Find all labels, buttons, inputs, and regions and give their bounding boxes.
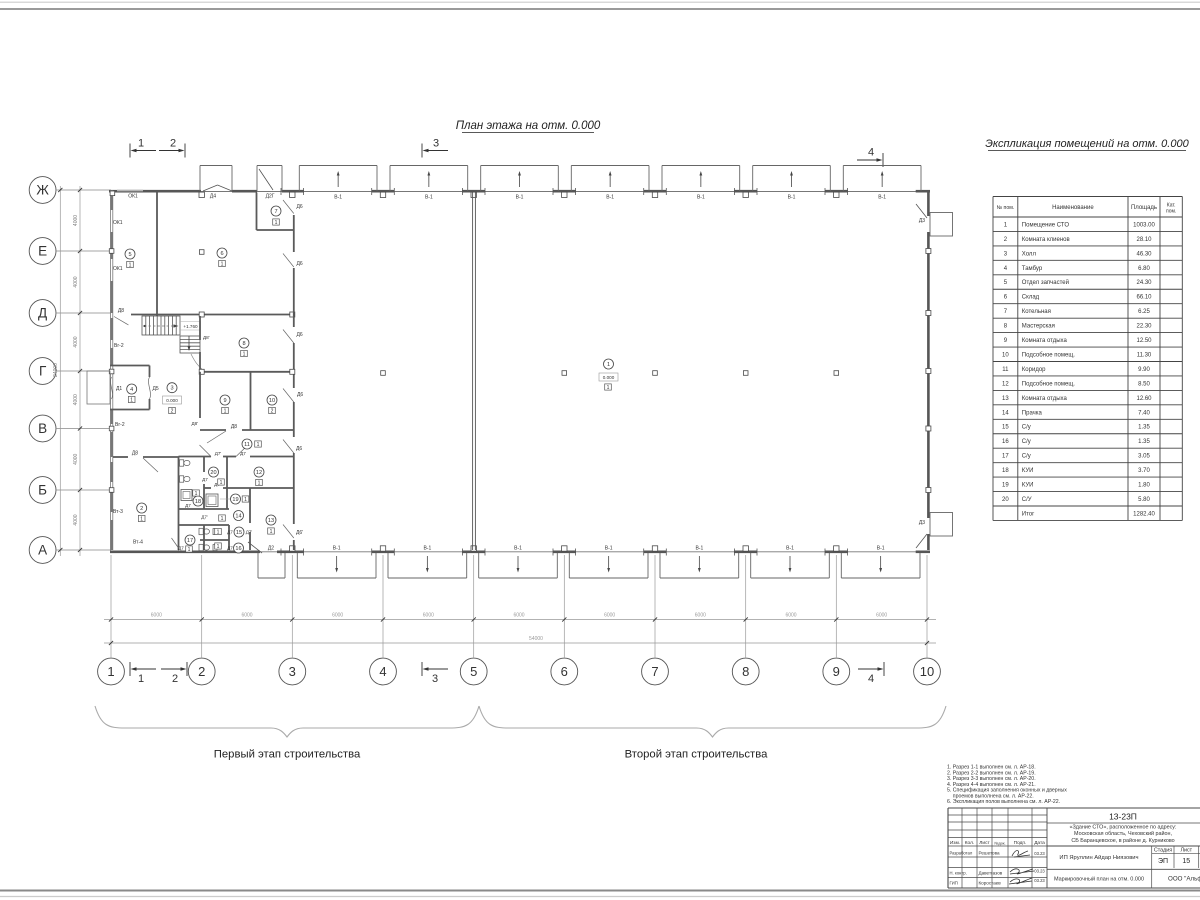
svg-text:4000: 4000 — [73, 453, 79, 464]
svg-text:4000: 4000 — [73, 394, 79, 405]
svg-text:Вт-4: Вт-4 — [133, 540, 143, 546]
svg-text:3: 3 — [289, 664, 296, 679]
svg-text:6000: 6000 — [423, 613, 434, 619]
svg-text:Вт-3: Вт-3 — [113, 509, 123, 515]
svg-text:Д7: Д7 — [202, 477, 208, 482]
svg-text:Д6: Д6 — [297, 204, 303, 210]
svg-text:20: 20 — [1002, 497, 1009, 503]
svg-text:В-1: В-1 — [786, 545, 794, 551]
svg-text:46.30: 46.30 — [1136, 251, 1152, 257]
svg-text:8: 8 — [742, 664, 749, 679]
svg-text:Тамбур: Тамбур — [1022, 266, 1043, 272]
svg-text:1: 1 — [258, 480, 261, 486]
svg-text:24000: 24000 — [53, 363, 59, 377]
svg-text:Д7': Д7' — [201, 515, 208, 520]
svg-text:Д7': Д7' — [246, 530, 253, 535]
svg-text:12.60: 12.60 — [1136, 396, 1152, 402]
svg-text:В-1: В-1 — [333, 545, 341, 551]
svg-text:15: 15 — [1182, 858, 1190, 865]
svg-text:6: 6 — [561, 664, 568, 679]
svg-text:03.23: 03.23 — [1034, 869, 1045, 874]
svg-text:10: 10 — [269, 398, 275, 404]
svg-text:Д6: Д6 — [297, 261, 303, 267]
svg-text:В-1: В-1 — [514, 545, 522, 551]
svg-text:Г: Г — [39, 364, 47, 379]
svg-text:Д8: Д8 — [118, 308, 124, 314]
svg-text:6.80: 6.80 — [1138, 266, 1150, 272]
svg-text:Мастерская: Мастерская — [1022, 324, 1055, 330]
svg-text:6000: 6000 — [241, 613, 252, 619]
svg-text:1: 1 — [217, 529, 220, 535]
svg-text:Д6: Д6 — [297, 332, 303, 338]
svg-text:1: 1 — [188, 547, 191, 553]
svg-text:пом.: пом. — [1166, 208, 1176, 214]
svg-text:19: 19 — [232, 497, 238, 503]
svg-text:Лист: Лист — [1180, 848, 1192, 854]
svg-text:0.000: 0.000 — [603, 375, 615, 380]
svg-text:Ж: Ж — [36, 183, 49, 198]
svg-text:11.30: 11.30 — [1137, 352, 1152, 358]
svg-text:Холл: Холл — [1022, 251, 1037, 257]
svg-text:18: 18 — [1002, 468, 1009, 474]
svg-text:КУИ: КУИ — [1022, 468, 1034, 474]
svg-text:В-1: В-1 — [425, 195, 433, 201]
svg-text:ИП Яруллин Айдар Ниязович: ИП Яруллин Айдар Ниязович — [1059, 854, 1138, 861]
svg-text:Д7: Д7 — [185, 503, 191, 508]
svg-text:Вг-2: Вг-2 — [115, 422, 125, 428]
svg-text:1: 1 — [221, 261, 224, 267]
svg-text:Н. контр.: Н. контр. — [950, 871, 967, 876]
svg-text:12.50: 12.50 — [1136, 338, 1152, 344]
svg-text:Д8': Д8' — [191, 421, 198, 426]
svg-text:Дата: Дата — [1034, 840, 1045, 846]
svg-text:6. Экспликация полов выполнена: 6. Экспликация полов выполнена см. л. АР… — [947, 799, 1060, 805]
svg-text:В-1: В-1 — [697, 195, 705, 201]
svg-text:В-1: В-1 — [516, 195, 524, 201]
svg-text:№ пом.: № пом. — [997, 205, 1015, 211]
svg-text:Комната клиенов: Комната клиенов — [1022, 237, 1070, 243]
svg-text:Д6': Д6' — [296, 530, 303, 536]
svg-text:Прачка: Прачка — [1022, 410, 1043, 416]
svg-text:9: 9 — [833, 664, 840, 679]
svg-text:5.80: 5.80 — [1138, 497, 1150, 503]
svg-text:13: 13 — [268, 518, 274, 524]
svg-text:17: 17 — [187, 538, 193, 544]
svg-text:Экспликация помещений на отм.: Экспликация помещений на отм. 0.000 — [985, 138, 1189, 150]
svg-text:6000: 6000 — [785, 613, 796, 619]
svg-text:24.30: 24.30 — [1136, 280, 1152, 286]
svg-text:16: 16 — [1002, 439, 1009, 445]
svg-text:В: В — [38, 421, 47, 436]
svg-text:14: 14 — [235, 514, 241, 520]
svg-text:4000: 4000 — [73, 215, 79, 226]
svg-text:12: 12 — [256, 470, 262, 476]
svg-text:1: 1 — [257, 442, 260, 448]
svg-text:8.50: 8.50 — [1138, 381, 1150, 387]
svg-text:В-1: В-1 — [606, 195, 614, 201]
svg-text:6000: 6000 — [513, 613, 524, 619]
svg-text:Д6: Д6 — [297, 392, 303, 398]
svg-text:Наименование: Наименование — [1052, 205, 1094, 211]
svg-text:С/у: С/у — [1022, 439, 1031, 445]
svg-text:13-23П: 13-23П — [1109, 812, 1137, 822]
svg-text:03.23: 03.23 — [1034, 878, 1045, 883]
svg-text:В-1: В-1 — [605, 545, 613, 551]
svg-text:«Здание СТО», расположенное по: «Здание СТО», расположенное по адресу: — [1070, 824, 1177, 830]
svg-text:Отдел запчастей: Отдел запчастей — [1022, 279, 1069, 286]
svg-text:Лист: Лист — [979, 840, 990, 846]
svg-text:1282.40: 1282.40 — [1133, 511, 1155, 517]
svg-text:1: 1 — [130, 397, 133, 403]
svg-text:8: 8 — [242, 341, 245, 347]
svg-text:15: 15 — [1002, 425, 1009, 431]
svg-text:3: 3 — [170, 386, 173, 392]
svg-text:2: 2 — [171, 408, 174, 414]
svg-text:22.30: 22.30 — [1136, 324, 1152, 330]
svg-text:Подсобное помещ.: Подсобное помещ. — [1022, 352, 1075, 358]
svg-text:Д7: Д7 — [178, 546, 184, 551]
svg-text:Кол.: Кол. — [965, 840, 975, 846]
svg-text:Д2: Д2 — [268, 545, 274, 551]
svg-text:4: 4 — [868, 147, 874, 159]
svg-text:4000: 4000 — [73, 336, 79, 347]
svg-text:7.40: 7.40 — [1138, 410, 1150, 416]
svg-text:9.90: 9.90 — [1138, 367, 1150, 373]
svg-text:1: 1 — [243, 351, 246, 357]
svg-text:Д8: Д8 — [132, 451, 138, 457]
svg-text:Даветгазов: Даветгазов — [979, 871, 1003, 876]
svg-text:3.70: 3.70 — [1138, 468, 1150, 474]
svg-text:0.000: 0.000 — [166, 398, 178, 403]
svg-text:А: А — [38, 543, 47, 558]
svg-text:ОК1: ОК1 — [128, 194, 138, 200]
svg-text:Разработал: Разработал — [950, 851, 973, 856]
svg-text:4: 4 — [868, 673, 874, 685]
svg-text:Итог: Итог — [1022, 511, 1035, 517]
svg-text:Д1: Д1 — [116, 386, 122, 392]
svg-text:28.10: 28.10 — [1136, 237, 1152, 243]
svg-text:19: 19 — [1002, 483, 1009, 489]
svg-text:Д8': Д8' — [203, 335, 210, 340]
svg-text:+1.760: +1.760 — [183, 324, 198, 329]
svg-text:1.80: 1.80 — [1138, 483, 1150, 489]
svg-text:7: 7 — [274, 209, 277, 215]
svg-text:6000: 6000 — [332, 613, 343, 619]
svg-text:1: 1 — [607, 362, 610, 368]
svg-text:Помещение СТО: Помещение СТО — [1022, 222, 1070, 228]
svg-text:66.10: 66.10 — [1136, 295, 1152, 301]
svg-text:2: 2 — [170, 138, 176, 150]
svg-text:Комната отдыха: Комната отдыха — [1022, 338, 1068, 344]
svg-text:1: 1 — [140, 516, 143, 522]
svg-text:1.35: 1.35 — [1138, 439, 1150, 445]
svg-text:Д7': Д7' — [215, 451, 222, 456]
svg-text:№док.: №док. — [994, 842, 1005, 846]
svg-text:4000: 4000 — [73, 276, 79, 287]
svg-text:Д4: Д4 — [210, 194, 216, 200]
svg-text:Комната отдыха: Комната отдыха — [1022, 396, 1068, 402]
svg-text:Д3: Д3 — [919, 520, 925, 526]
svg-text:Вг-2: Вг-2 — [114, 343, 124, 349]
svg-text:Площадь: Площадь — [1131, 205, 1157, 211]
svg-text:10: 10 — [920, 664, 934, 679]
svg-text:В-1: В-1 — [878, 195, 886, 201]
svg-text:В-1: В-1 — [788, 195, 796, 201]
svg-text:1: 1 — [244, 497, 247, 503]
svg-text:Д6: Д6 — [296, 446, 302, 452]
svg-text:54000: 54000 — [529, 636, 543, 642]
svg-text:ЭП: ЭП — [1158, 858, 1168, 865]
svg-text:1: 1 — [275, 220, 278, 226]
svg-text:Д7: Д7 — [227, 530, 233, 535]
svg-text:6000: 6000 — [151, 613, 162, 619]
svg-text:13: 13 — [1002, 396, 1009, 402]
svg-text:2: 2 — [198, 664, 205, 679]
svg-text:11: 11 — [1002, 367, 1009, 373]
svg-text:Б: Б — [38, 483, 47, 498]
svg-text:Д8: Д8 — [231, 424, 237, 430]
svg-text:12: 12 — [1002, 381, 1009, 387]
svg-text:Решетова: Решетова — [979, 851, 1001, 856]
svg-text:Д2Г: Д2Г — [266, 194, 275, 200]
svg-text:1: 1 — [129, 262, 132, 268]
svg-text:6000: 6000 — [876, 613, 887, 619]
svg-text:1: 1 — [221, 516, 224, 522]
svg-text:В-1: В-1 — [877, 545, 885, 551]
svg-text:1: 1 — [270, 529, 273, 535]
svg-text:2: 2 — [140, 506, 143, 512]
svg-text:03.23: 03.23 — [1034, 851, 1045, 856]
svg-text:2: 2 — [172, 673, 178, 685]
svg-text:Котельная: Котельная — [1022, 309, 1051, 315]
svg-text:17: 17 — [1002, 454, 1009, 460]
svg-text:Первый этап строительства: Первый этап строительства — [214, 749, 361, 761]
svg-text:16: 16 — [235, 546, 241, 552]
svg-text:1: 1 — [138, 138, 144, 150]
svg-text:Е: Е — [38, 244, 47, 259]
svg-text:1: 1 — [607, 385, 610, 391]
svg-text:4: 4 — [379, 664, 386, 679]
svg-text:Д7: Д7 — [227, 546, 233, 551]
svg-text:6.25: 6.25 — [1138, 309, 1150, 315]
svg-text:4: 4 — [130, 387, 133, 393]
svg-text:1: 1 — [195, 491, 198, 497]
svg-text:КУИ: КУИ — [1022, 483, 1034, 489]
svg-text:С/У: С/У — [1022, 497, 1032, 503]
svg-text:5: 5 — [128, 252, 131, 258]
svg-text:В-1: В-1 — [695, 545, 703, 551]
svg-text:5: 5 — [470, 664, 477, 679]
svg-text:1.35: 1.35 — [1138, 425, 1150, 431]
svg-text:18: 18 — [195, 499, 201, 505]
svg-text:В-1: В-1 — [334, 195, 342, 201]
svg-text:7: 7 — [651, 664, 658, 679]
svg-text:Подсобное помещ.: Подсобное помещ. — [1022, 381, 1075, 387]
svg-text:20: 20 — [210, 470, 216, 476]
svg-text:9: 9 — [223, 398, 226, 404]
svg-text:1: 1 — [224, 408, 227, 414]
svg-text:ОК1: ОК1 — [113, 220, 123, 226]
svg-text:1: 1 — [217, 544, 220, 550]
svg-text:1: 1 — [107, 664, 114, 679]
svg-text:Коростаев: Коростаев — [979, 881, 1002, 886]
svg-text:Подп.: Подп. — [1014, 840, 1027, 846]
svg-text:Д5: Д5 — [153, 386, 159, 392]
svg-text:6: 6 — [220, 251, 223, 257]
svg-text:Изм.: Изм. — [950, 840, 960, 846]
svg-text:11: 11 — [244, 442, 250, 448]
svg-text:СБ Баранцевское, в районе д. К: СБ Баранцевское, в районе д. Курниково — [1071, 837, 1174, 844]
svg-text:В-1: В-1 — [423, 545, 431, 551]
svg-text:3: 3 — [433, 138, 439, 150]
svg-text:15: 15 — [236, 530, 242, 536]
svg-text:С/у: С/у — [1022, 454, 1031, 460]
svg-text:ООО "Альфа: ООО "Альфа — [1168, 876, 1200, 883]
svg-text:ГИП: ГИП — [950, 881, 958, 886]
svg-text:ОК1: ОК1 — [113, 266, 123, 272]
svg-text:6000: 6000 — [604, 613, 615, 619]
svg-text:1003.00: 1003.00 — [1133, 222, 1155, 228]
svg-text:1: 1 — [138, 673, 144, 685]
svg-text:Маркировочный план на отм. 0.0: Маркировочный план на отм. 0.000 — [1054, 875, 1144, 882]
svg-text:14: 14 — [1002, 410, 1009, 416]
svg-text:Второй этап строительства: Второй этап строительства — [625, 749, 768, 761]
svg-text:2: 2 — [271, 408, 274, 414]
svg-text:1: 1 — [220, 480, 223, 486]
svg-text:Д3: Д3 — [919, 218, 925, 224]
svg-text:С/у: С/у — [1022, 425, 1031, 431]
svg-text:6000: 6000 — [695, 613, 706, 619]
svg-text:План этажа на отм. 0.000: План этажа на отм. 0.000 — [456, 120, 601, 132]
svg-text:Д: Д — [38, 306, 47, 321]
svg-text:10: 10 — [1002, 352, 1009, 358]
svg-text:Московская область, Чеховский: Московская область, Чеховский район, — [1074, 830, 1172, 837]
svg-text:Склад: Склад — [1022, 295, 1040, 301]
svg-text:Стадия: Стадия — [1154, 848, 1172, 854]
svg-text:Коридор: Коридор — [1022, 367, 1046, 373]
svg-text:4000: 4000 — [73, 514, 79, 525]
svg-text:3: 3 — [432, 673, 438, 685]
svg-text:3.05: 3.05 — [1138, 454, 1150, 460]
